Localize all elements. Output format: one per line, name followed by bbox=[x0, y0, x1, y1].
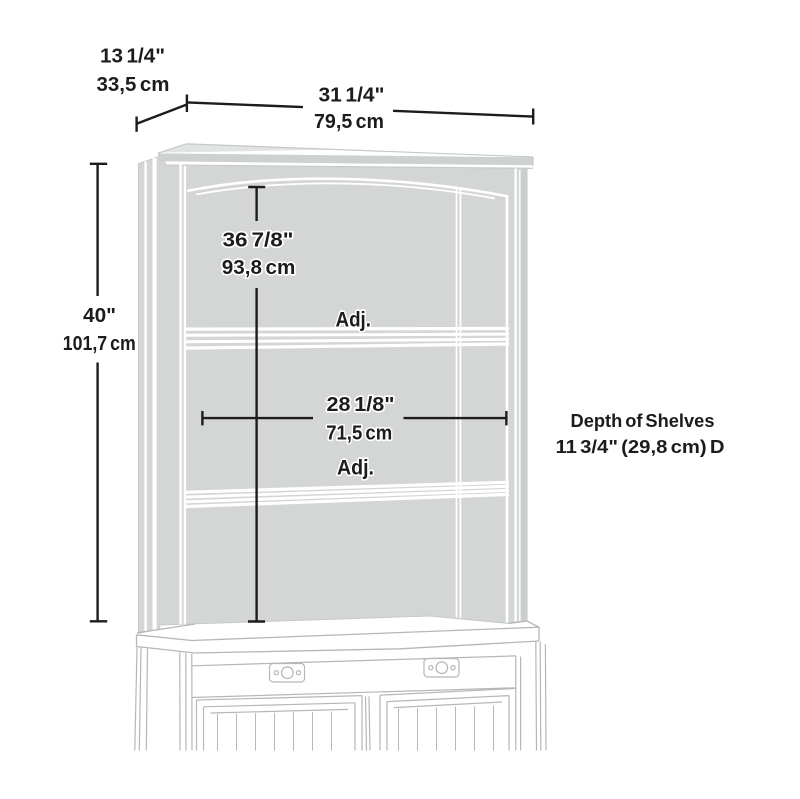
svg-text:28 1/8": 28 1/8" bbox=[327, 393, 395, 416]
svg-text:71,5 cm: 71,5 cm bbox=[326, 422, 392, 445]
svg-text:Adj.: Adj. bbox=[337, 457, 374, 480]
svg-text:31 1/4": 31 1/4" bbox=[319, 84, 385, 107]
svg-text:40": 40" bbox=[83, 304, 116, 327]
svg-text:79,5 cm: 79,5 cm bbox=[314, 110, 384, 133]
svg-text:36 7/8": 36 7/8" bbox=[223, 228, 294, 251]
svg-text:101,7 cm: 101,7 cm bbox=[63, 332, 136, 355]
svg-text:Adj.: Adj. bbox=[336, 309, 372, 332]
svg-text:Depth of Shelves: Depth of Shelves bbox=[571, 410, 715, 431]
svg-text:11 3/4" (29,8 cm) D: 11 3/4" (29,8 cm) D bbox=[556, 436, 725, 457]
svg-text:93,8 cm: 93,8 cm bbox=[222, 256, 295, 279]
svg-text:33,5 cm: 33,5 cm bbox=[97, 73, 170, 96]
svg-text:13 1/4": 13 1/4" bbox=[100, 45, 165, 68]
